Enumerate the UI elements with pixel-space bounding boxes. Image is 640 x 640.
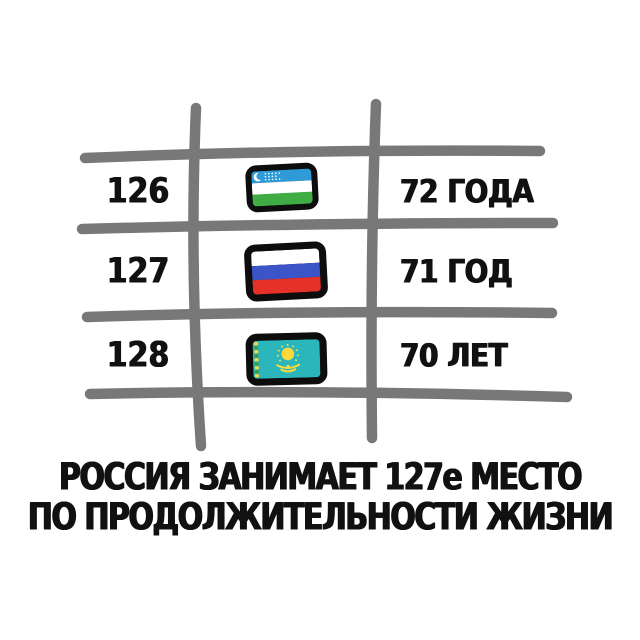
table-grid bbox=[0, 0, 640, 640]
grid-hline-1 bbox=[85, 151, 540, 158]
grid-hline-4 bbox=[90, 392, 567, 397]
rank-cell-row1: 126 bbox=[85, 169, 191, 215]
grid-hline-2 bbox=[82, 223, 553, 229]
rank-cell-row2: 127 bbox=[85, 249, 191, 295]
caption-line-2: ПО ПРОДОЛЖИТЕЛЬНОСТИ ЖИЗНИ bbox=[0, 494, 640, 542]
russia-flag-icon bbox=[244, 241, 329, 302]
uzbekistan-flag-icon bbox=[245, 162, 319, 213]
life-expectancy-cell-row2: 71 ГОД bbox=[400, 249, 512, 295]
grid-hline-3 bbox=[87, 312, 552, 317]
kazakhstan-flag-icon bbox=[245, 332, 327, 386]
life-expectancy-cell-row1: 72 ГОДА bbox=[400, 169, 533, 215]
life-expectancy-cell-row3: 70 ЛЕТ bbox=[400, 333, 507, 379]
infographic-canvas: 126 72 ГОДА 127 71 ГОД 128 bbox=[0, 0, 640, 640]
rank-cell-row3: 128 bbox=[85, 333, 191, 379]
